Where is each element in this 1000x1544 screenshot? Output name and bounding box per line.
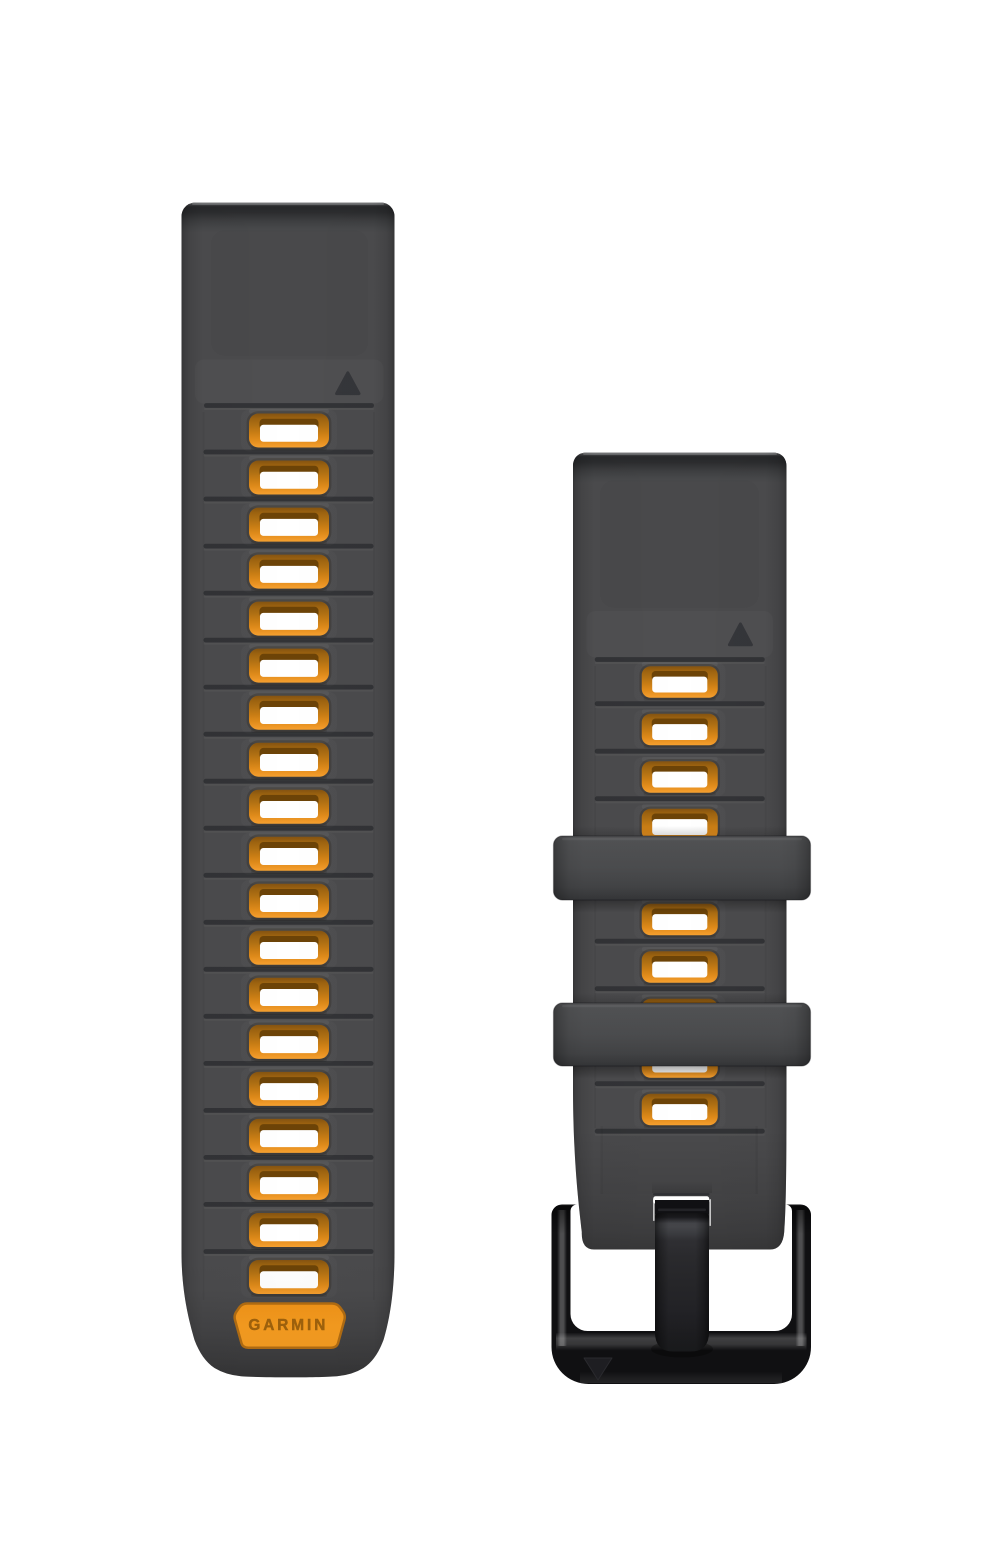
- svg-text:GARMIN: GARMIN: [248, 1317, 328, 1334]
